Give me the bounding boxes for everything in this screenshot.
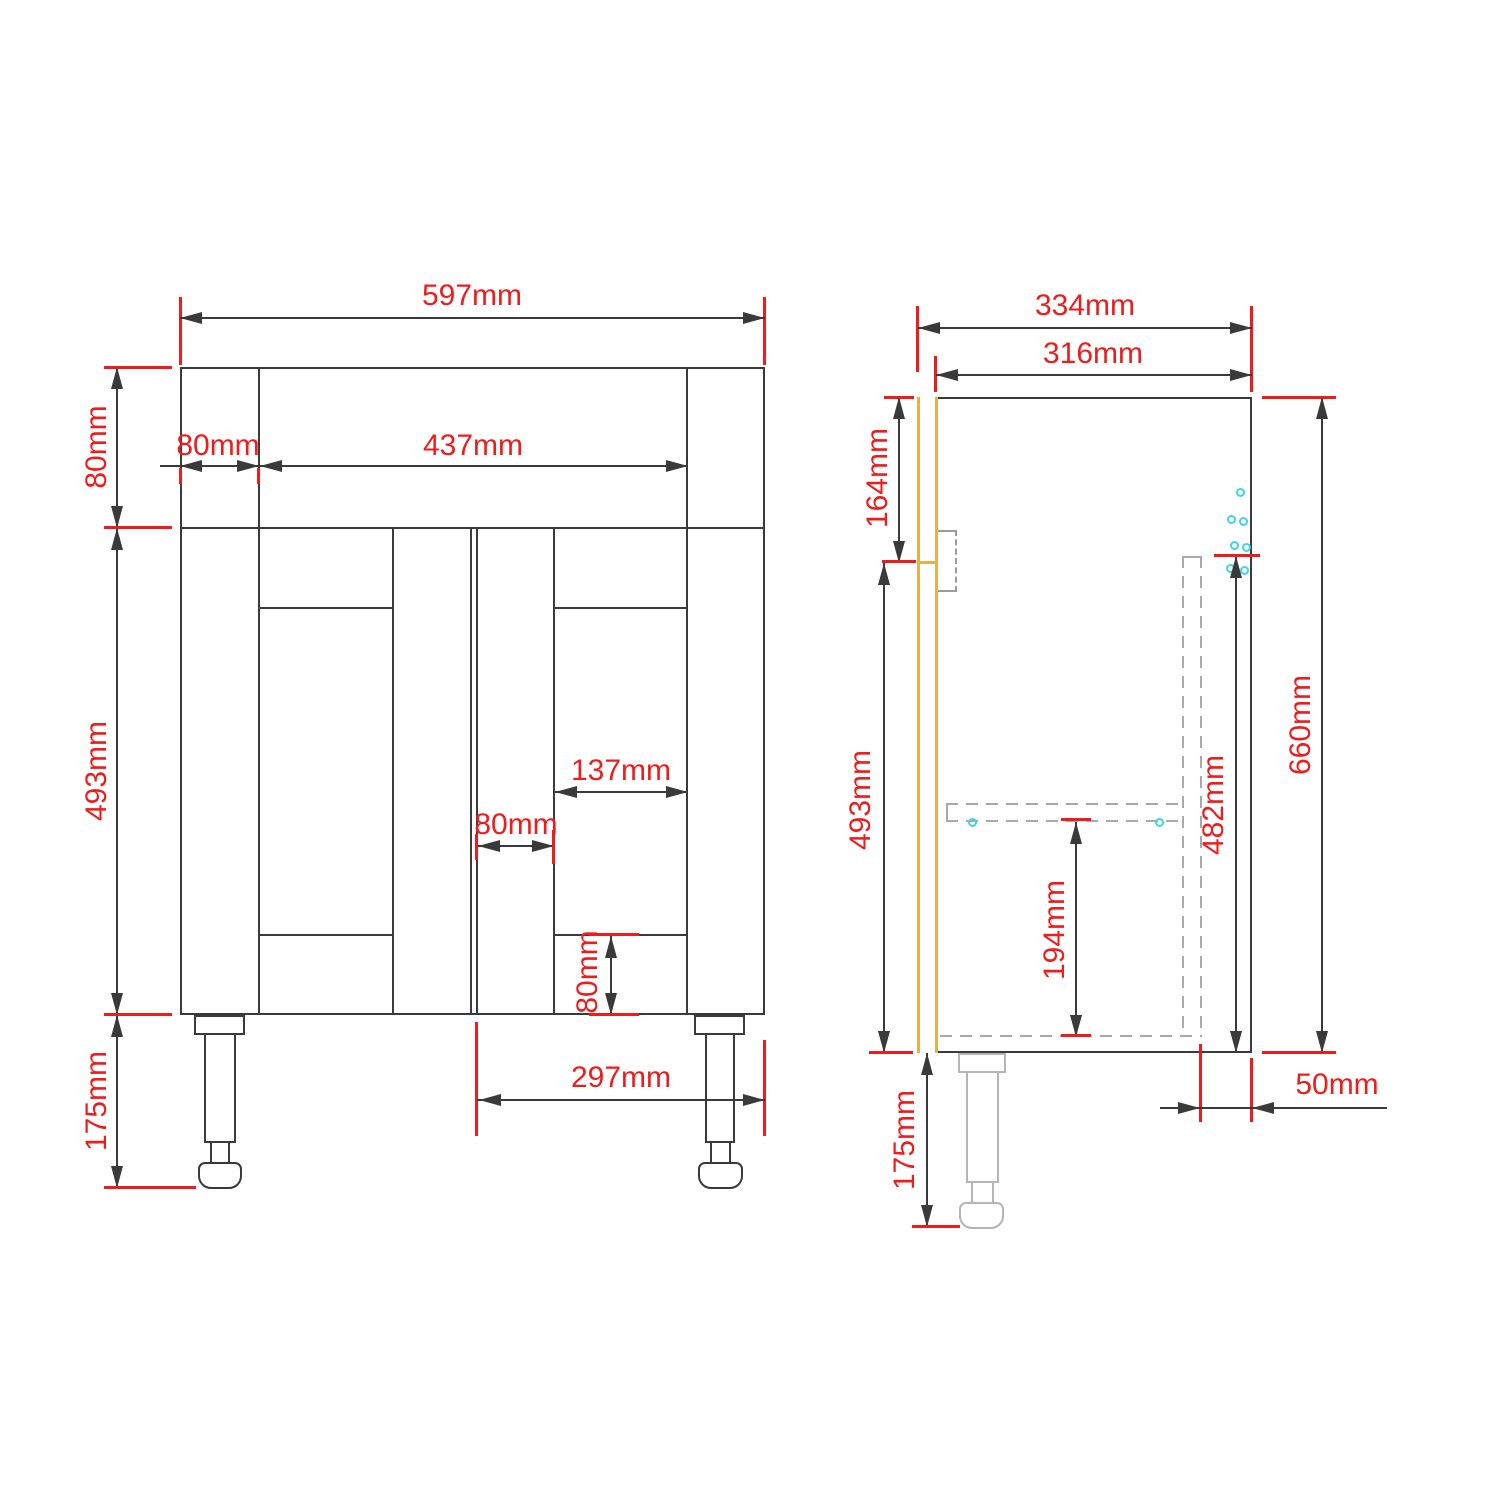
- dim-line-334: [918, 327, 1252, 329]
- arrow-437-right: [666, 460, 688, 472]
- front-left-leg-neck: [210, 1141, 230, 1164]
- side-shelf-front-cap: [946, 803, 948, 822]
- screw-hole-icon: [1242, 543, 1251, 552]
- dim-line-660: [1321, 397, 1323, 1053]
- dim-line-front-left-column: [116, 367, 118, 1188]
- arrow-194-top: [1070, 822, 1082, 844]
- dim-line-175-side: [926, 1053, 928, 1227]
- front-right-leg-foot: [698, 1162, 743, 1189]
- arrow-80-bottom-rail-bottom: [605, 993, 617, 1015]
- front-door-gap-left-line: [470, 528, 472, 1015]
- side-door-joint-tick: [917, 561, 938, 564]
- dim-line-297: [477, 1099, 765, 1101]
- tick-175-side-bottom: [912, 1225, 960, 1228]
- arrow-137-left: [555, 786, 577, 798]
- front-right-leg-shaft: [705, 1033, 735, 1143]
- arrow-482-bottom: [1230, 1031, 1242, 1053]
- arrow-297-left: [479, 1094, 501, 1106]
- arrow-334-left: [918, 322, 940, 334]
- side-back-panel-front-line: [1182, 556, 1184, 1037]
- front-left-door-panel-right-edge: [392, 528, 394, 1015]
- arrow-437-left: [260, 460, 282, 472]
- front-right-door-panel-top: [553, 607, 688, 609]
- tick-660-bottom: [1262, 1051, 1336, 1054]
- front-right-leg-neck: [710, 1141, 731, 1164]
- tick-194-top: [1061, 818, 1091, 821]
- screw-hole-icon: [1230, 541, 1239, 550]
- arrow-334-right: [1230, 322, 1252, 334]
- side-leg-neck: [971, 1181, 994, 1204]
- dim-label-top-rail: 80mm: [82, 405, 112, 488]
- arrow-80-bottom-rail-top: [605, 936, 617, 958]
- dim-line-437: [258, 465, 688, 467]
- front-left-leg-mount: [194, 1015, 245, 1035]
- arrow-164-top: [893, 397, 905, 419]
- front-door-gap-right-line: [476, 528, 478, 1015]
- arrow-front-175-bottom: [111, 1166, 123, 1188]
- tick-194-bottom: [1061, 1034, 1091, 1037]
- arrow-137-right: [666, 786, 688, 798]
- screw-hole-icon: [1227, 515, 1236, 524]
- arrow-80-door-left: [478, 840, 500, 852]
- arrow-660-top: [1316, 397, 1328, 419]
- arrow-597-right: [743, 312, 765, 324]
- dim-label-door-height-front: 493mm: [82, 721, 112, 821]
- arrow-597-left: [180, 312, 202, 324]
- tick-front-rail-door: [104, 526, 172, 529]
- front-right-door-panel-left-edge: [553, 528, 555, 1015]
- side-shelf-top-line: [946, 803, 1183, 805]
- front-left-leg-shaft: [204, 1033, 236, 1143]
- arrow-80-door-right: [532, 840, 554, 852]
- screw-hole-icon: [1236, 488, 1245, 497]
- side-leg-shaft: [966, 1071, 999, 1183]
- arrow-50-right: [1252, 1102, 1274, 1114]
- arrow-175-side-bottom: [921, 1205, 933, 1227]
- dim-label-door-height-side: 493mm: [846, 750, 876, 850]
- shelf-pin-hole-icon: [1155, 818, 1164, 827]
- side-back-panel-top-cap: [1182, 556, 1202, 558]
- ext-line-297-right: [763, 1040, 766, 1136]
- ext-line-597-left: [179, 297, 182, 365]
- tick-80-stile-left: [179, 468, 182, 484]
- dim-label-door-stile: 80mm: [474, 810, 557, 840]
- dim-label-back-panel: 482mm: [1199, 755, 1229, 855]
- drawing-canvas: 597mm 80mm 437mm 80mm 493mm 175mm 137mm …: [0, 0, 1500, 1500]
- tick-front-leg-bottom: [104, 1186, 196, 1189]
- dim-label-top-section: 164mm: [863, 428, 893, 528]
- dim-label-carcass-depth: 316mm: [1043, 339, 1143, 369]
- dim-line-194: [1075, 822, 1077, 1037]
- arrow-316-right: [1230, 369, 1252, 381]
- dim-label-shelf-height: 194mm: [1040, 880, 1070, 980]
- screw-hole-icon: [1239, 517, 1248, 526]
- dim-label-drawer-front: 437mm: [423, 431, 523, 461]
- front-left-leg-foot: [198, 1162, 242, 1189]
- arrow-front-80-top: [111, 367, 123, 389]
- tick-front-top-edge: [104, 366, 172, 369]
- shelf-pin-hole-icon: [968, 818, 977, 827]
- front-left-door-panel-top: [258, 607, 394, 609]
- side-door-back-face-line: [935, 397, 938, 1053]
- front-top-rail-divider: [180, 527, 765, 529]
- arrow-660-bottom: [1316, 1031, 1328, 1053]
- dim-label-leg-height-side: 175mm: [890, 1090, 920, 1190]
- side-view-outline: [936, 397, 1252, 1053]
- dim-line-597: [180, 317, 765, 319]
- arrow-493-side-bottom: [878, 1031, 890, 1053]
- front-right-leg-mount: [694, 1015, 745, 1035]
- arrow-316-left: [936, 369, 958, 381]
- tick-482-top: [1214, 554, 1260, 557]
- tick-164-top: [884, 396, 914, 399]
- side-hinge-plate: [938, 530, 957, 592]
- dim-label-leg-height-front: 175mm: [82, 1051, 112, 1151]
- ext-line-334-left: [916, 306, 919, 372]
- tick-493-side-bottom: [869, 1051, 913, 1054]
- dim-line-493-side: [883, 563, 885, 1053]
- arrow-482-top: [1230, 556, 1242, 578]
- front-left-door-panel-bottom: [258, 934, 394, 936]
- dim-label-overall-width: 597mm: [422, 281, 522, 311]
- arrow-297-right: [743, 1094, 765, 1106]
- tick-660-top: [1262, 396, 1336, 399]
- arrow-front-493-top: [111, 528, 123, 550]
- ext-line-597-right: [763, 297, 766, 365]
- arrow-front-80-bottom: [111, 506, 123, 528]
- dim-label-overall-depth: 334mm: [1035, 291, 1135, 321]
- tick-80-stile-right: [257, 468, 260, 484]
- dim-label-door-panel: 137mm: [571, 756, 671, 786]
- arrow-front-493-bottom: [111, 993, 123, 1015]
- ext-line-297-left: [475, 1022, 478, 1136]
- dim-label-door-width: 297mm: [571, 1063, 671, 1093]
- dim-line-316: [936, 374, 1252, 376]
- tick-front-door-bottom: [104, 1013, 172, 1016]
- dim-line-164: [898, 397, 900, 563]
- dim-label-overall-height: 660mm: [1286, 675, 1316, 775]
- arrow-50-left: [1178, 1102, 1200, 1114]
- arrow-front-175-top: [111, 1015, 123, 1037]
- dim-label-side-stile: 80mm: [176, 431, 259, 461]
- side-door-front-face-line: [917, 397, 920, 1053]
- arrow-175-side-top: [921, 1053, 933, 1075]
- dim-line-482: [1235, 556, 1237, 1053]
- side-leg-mount: [958, 1053, 1006, 1073]
- arrow-493-side-top: [878, 563, 890, 585]
- dim-label-door-bottom-rail: 80mm: [573, 930, 603, 1013]
- dim-label-back-inset: 50mm: [1295, 1070, 1378, 1100]
- side-leg-foot: [959, 1202, 1004, 1229]
